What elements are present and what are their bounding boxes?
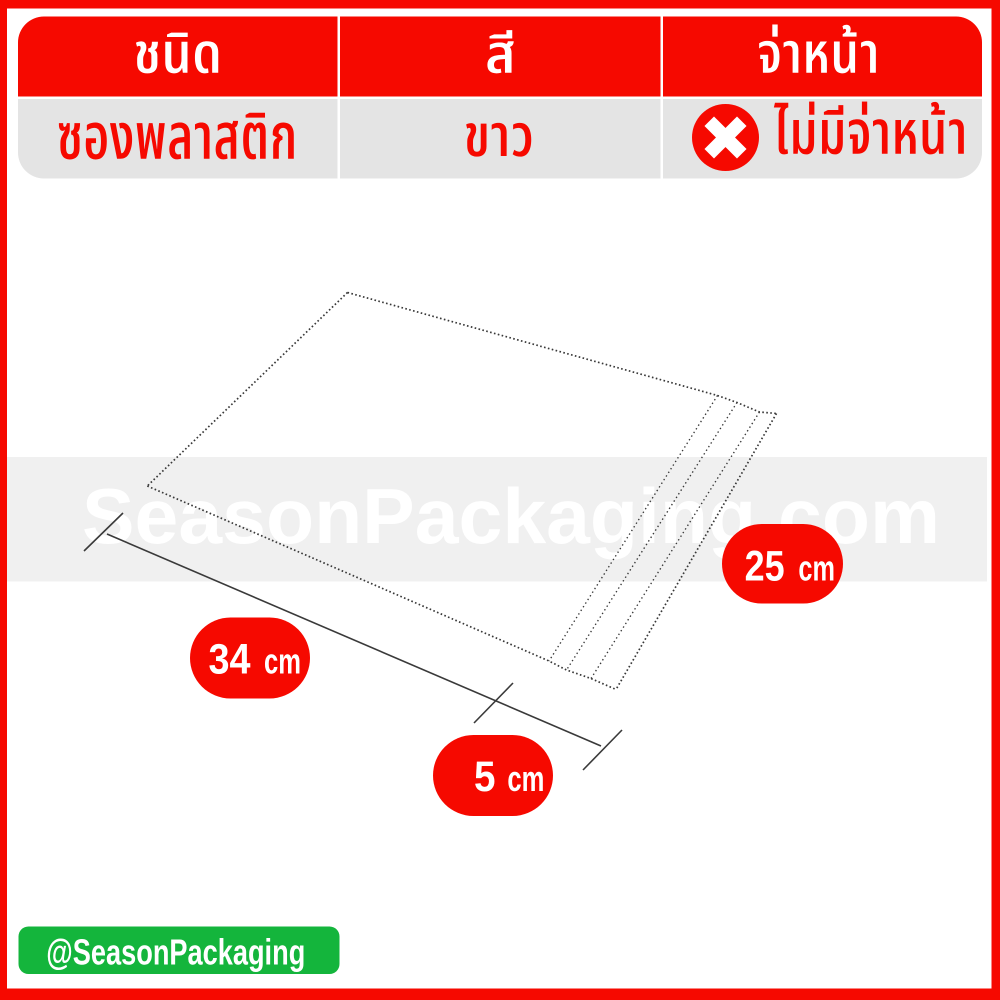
svg-text:34: 34	[209, 636, 251, 684]
svg-text:@SeasonPackaging: @SeasonPackaging	[46, 932, 305, 973]
svg-text:cm: cm	[798, 548, 835, 589]
svg-text:25: 25	[745, 543, 785, 591]
svg-text:cm: cm	[264, 641, 301, 682]
svg-text:5: 5	[474, 753, 496, 801]
svg-text:cm: cm	[507, 758, 544, 799]
